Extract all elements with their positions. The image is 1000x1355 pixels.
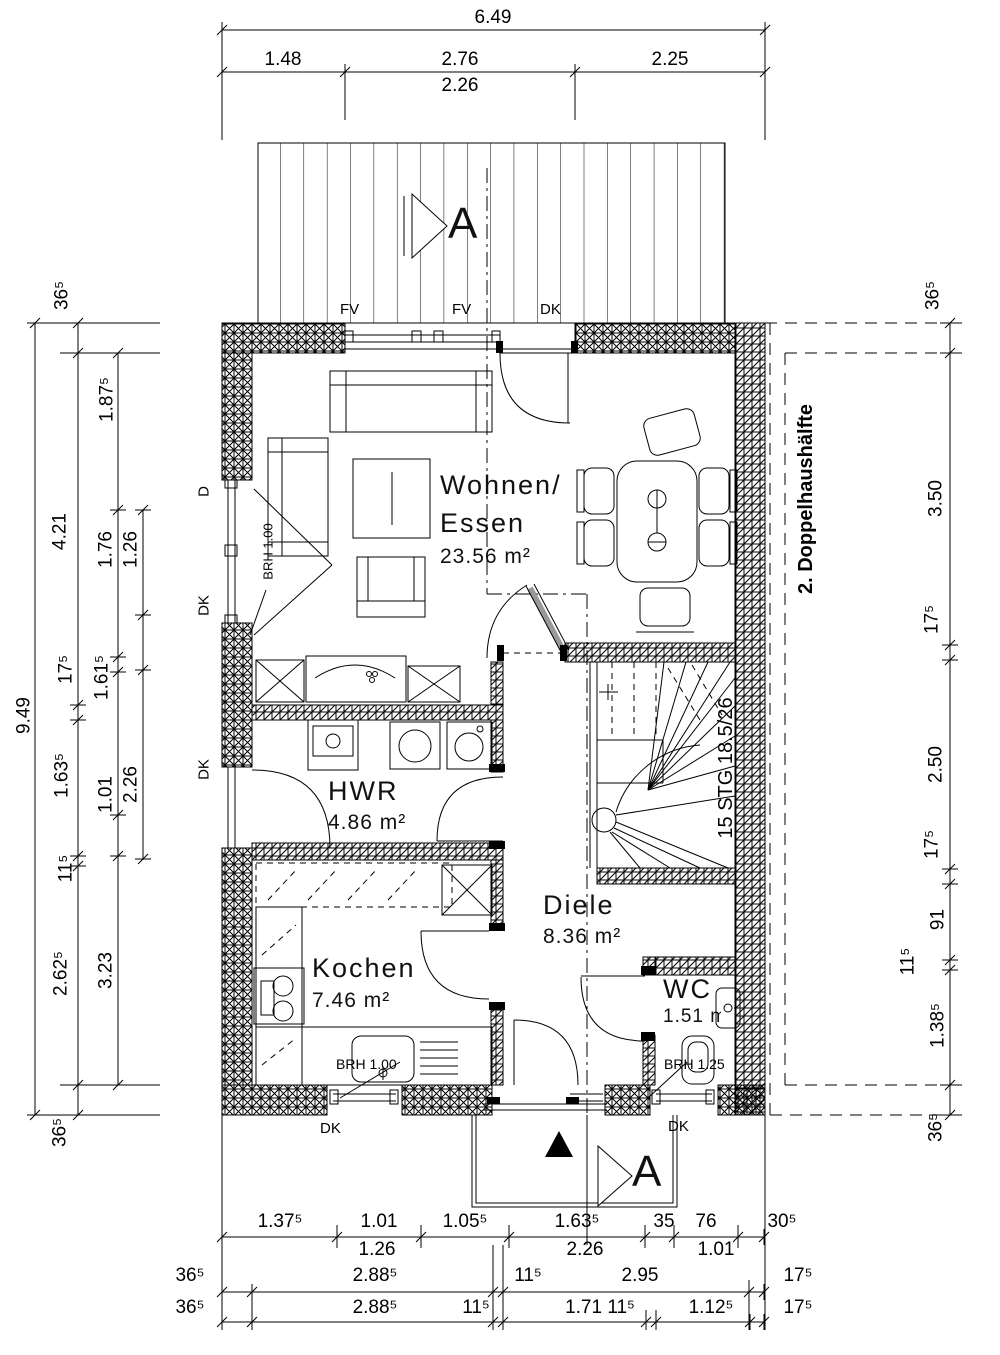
room-label-diele: Diele — [543, 892, 615, 919]
chair — [584, 468, 614, 514]
dim-label: 4.21 — [51, 497, 70, 567]
window-label-dk: DK — [668, 1119, 689, 1134]
room-area-diele: 8.36 m² — [543, 926, 621, 947]
window-label-dk: DK — [320, 1121, 341, 1136]
room-area-wohnen: 23.56 m² — [440, 546, 531, 567]
dim-label: 1.76 — [97, 515, 116, 585]
chair — [699, 520, 729, 566]
dim-label: 3.50 — [927, 464, 946, 534]
section-letter-bottom: A — [632, 1150, 661, 1194]
room-label-wohnen: Wohnen/ — [440, 472, 562, 499]
upper-cabinets — [256, 863, 452, 907]
window-label-brh: BRH 1.00 — [262, 507, 275, 597]
dim-label: 1.38⁵ — [929, 991, 948, 1061]
sofa-small — [268, 438, 328, 556]
stairs-label: 15 STG 18.5/26 — [716, 663, 736, 873]
dim-label: 36⁵ — [53, 261, 72, 331]
dim-label: 1.26 — [122, 515, 141, 585]
section-triangle-bottom — [598, 1146, 632, 1206]
dim-label: 17⁵ — [923, 810, 942, 880]
window-label-dk: DK — [197, 571, 212, 641]
dim-label: 1.63⁵ — [53, 741, 72, 811]
dim-label: 1.63⁵ — [547, 1212, 607, 1231]
dim-label: 2.62⁵ — [52, 939, 71, 1009]
room-area-wc: 1.51 m² — [663, 1007, 721, 1026]
dryer — [447, 722, 492, 769]
dim-label: 11⁵ — [57, 834, 76, 904]
dim-label: 1.26 — [352, 1240, 402, 1259]
chair — [699, 468, 729, 514]
room-area-kochen: 7.46 m² — [312, 990, 390, 1011]
dim-label: 17⁵ — [776, 1298, 820, 1317]
dim-label: 1.37⁵ — [250, 1212, 310, 1231]
room-label-hwr: HWR — [328, 778, 398, 805]
dim-label: 11⁵ — [899, 927, 918, 997]
chair — [584, 520, 614, 566]
dim-label: 2.26 — [560, 1240, 610, 1259]
dim-label: 9.49 — [15, 681, 34, 751]
window-label-fv: FV — [340, 302, 359, 317]
window-label-fv: FV — [452, 302, 471, 317]
sofa-large — [330, 371, 492, 432]
dim-label: 35 — [649, 1212, 679, 1231]
floor-plan-page: 6.49 1.48 2.76 2.25 2.26 36⁵ 1.87⁵ 4.21 … — [0, 0, 1000, 1355]
floor-plan-drawing — [0, 0, 1000, 1355]
terrace-deck — [258, 143, 725, 323]
dim-label: 30⁵ — [762, 1212, 802, 1231]
dim-label: 1.01 — [97, 760, 116, 830]
dim-label: 2.26 — [435, 76, 485, 95]
dim-label: 17⁵ — [57, 635, 76, 705]
dim-label: 17⁵ — [776, 1266, 820, 1285]
room-label-kochen: Kochen — [312, 955, 416, 982]
room-area-hwr: 4.86 m² — [328, 812, 406, 833]
dim-label: 36⁵ — [927, 1093, 946, 1163]
window-label-dk: DK — [197, 735, 212, 805]
dim-label: 76 — [691, 1212, 721, 1231]
dim-label: 2.26 — [122, 750, 141, 820]
dim-label: 1.01 — [691, 1240, 741, 1259]
stair-pole — [592, 808, 616, 832]
room-label-essen: Essen — [440, 510, 525, 537]
dim-label: 2.95 — [615, 1266, 665, 1285]
sink-unit — [308, 720, 358, 770]
dim-label: 2.88⁵ — [345, 1266, 405, 1285]
dim-label: 1.71 11⁵ — [560, 1298, 640, 1317]
dim-label: 36⁵ — [168, 1298, 212, 1317]
dim-label: 2.25 — [645, 50, 695, 69]
dim-label: 1.01 — [349, 1212, 409, 1231]
dim-label: 36⁵ — [168, 1266, 212, 1285]
staircase — [590, 662, 735, 868]
window-label-d: D — [197, 457, 212, 527]
chair — [642, 407, 702, 457]
dim-label: 6.49 — [463, 8, 523, 27]
hwr-fixtures — [308, 720, 492, 770]
dim-label: 1.61⁵ — [93, 643, 112, 713]
dim-label: 1.87⁵ — [98, 365, 117, 435]
dim-label: 36⁵ — [51, 1098, 70, 1168]
section-letter-top: A — [448, 202, 477, 246]
dim-label: 1.12⁵ — [681, 1298, 741, 1317]
dim-label: 1.05⁵ — [435, 1212, 495, 1231]
room-label-wc: WC — [663, 976, 712, 1003]
entrance-arrow — [545, 1131, 573, 1157]
dim-label: 2.50 — [927, 730, 946, 800]
dim-label: 1.48 — [258, 50, 308, 69]
dim-label: 11⁵ — [454, 1298, 498, 1317]
dim-label: 17⁵ — [923, 585, 942, 655]
dim-label: 11⁵ — [506, 1266, 550, 1285]
duplex-outline — [765, 323, 945, 1115]
annex-label: 2. Doppelhaushälfte — [796, 389, 816, 609]
chair — [640, 588, 690, 626]
dim-label: 3.23 — [97, 936, 116, 1006]
counter-left — [256, 907, 302, 1027]
window-label-brh: BRH 1.00 — [336, 1057, 397, 1071]
dim-label: 2.76 — [435, 50, 485, 69]
window-label-brh: BRH 1.25 — [664, 1057, 725, 1071]
dim-label: 91 — [929, 885, 948, 955]
doors — [421, 341, 655, 1110]
dim-label: 36⁵ — [924, 261, 943, 331]
dim-label: 2.88⁵ — [345, 1298, 405, 1317]
armchair — [357, 557, 425, 617]
window-label-dk: DK — [540, 302, 561, 317]
